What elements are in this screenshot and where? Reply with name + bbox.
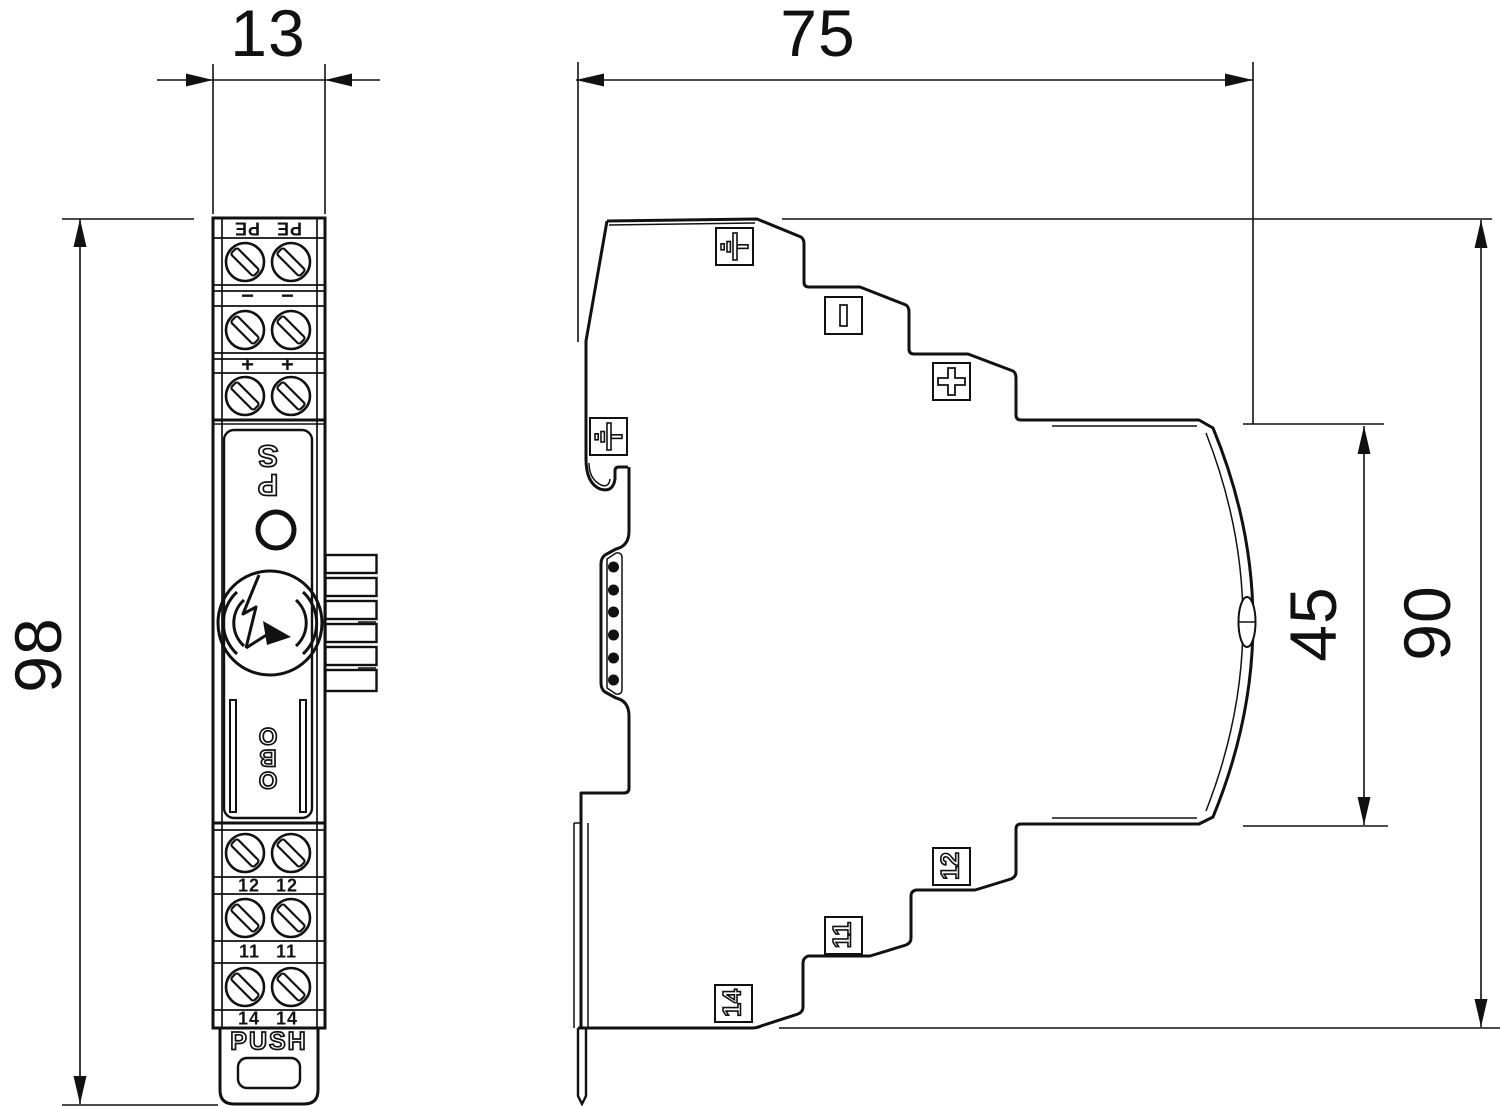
- edge-latch-lens: [1239, 597, 1257, 647]
- brand-ps: P S: [258, 441, 279, 498]
- dim-side-width: [576, 62, 1253, 424]
- dim-label-front-height: 98: [0, 617, 76, 692]
- drawing-linework: [0, 0, 1500, 1106]
- bus-comb-connector: [326, 555, 377, 691]
- front-view: [213, 218, 377, 1104]
- side-view: [574, 219, 1256, 1104]
- t12-left: 12: [238, 876, 260, 897]
- side-release-tab: [578, 1028, 586, 1104]
- dim-label-side-height: 90: [1389, 585, 1465, 660]
- dim-front-height: [62, 219, 218, 1105]
- dim-front-width: [157, 64, 380, 214]
- dim-label-front-width: 13: [230, 0, 305, 71]
- side-markers: [590, 228, 970, 1022]
- terminal-label-pe: PEPE: [234, 218, 302, 239]
- ps-letter-p: P: [258, 470, 279, 499]
- side-label-11: 11: [829, 922, 858, 948]
- current-bar-icon: [840, 305, 847, 326]
- bus-connector-side: [607, 553, 622, 694]
- ps-letter-s: S: [258, 441, 279, 470]
- inspection-window: [258, 512, 294, 548]
- obo-letter-1: O: [259, 768, 278, 790]
- terminal-label-minus: −−: [241, 283, 295, 309]
- terminal-label-plus: ++: [241, 352, 295, 378]
- plus-right: +: [281, 352, 295, 378]
- lightning-emblem-icon: [218, 571, 322, 675]
- terminal-label-11: 1111: [239, 942, 297, 963]
- terminal-label-14: 1414: [238, 1009, 298, 1030]
- pe-left: PE: [276, 218, 302, 239]
- dim-label-side-width: 75: [780, 0, 855, 71]
- obo-letter-3: O: [259, 724, 278, 746]
- dim-label-side-inner-height: 45: [1275, 586, 1351, 661]
- plus-icon: [938, 368, 965, 395]
- minus-right: −: [281, 283, 295, 309]
- plus-left: +: [241, 352, 255, 378]
- pe-right: PE: [234, 218, 260, 239]
- technical-drawing: 13 75 98 45 90 PEPE −− ++ 1212 1111 1414…: [0, 0, 1500, 1106]
- side-label-12: 12: [937, 852, 966, 880]
- t11-right: 11: [276, 942, 297, 963]
- push-label: PUSH: [230, 1028, 307, 1057]
- t12-right: 12: [276, 876, 298, 897]
- t14-left: 14: [238, 1009, 260, 1030]
- t14-right: 14: [276, 1009, 298, 1030]
- release-slot: [238, 1058, 300, 1088]
- bus-connector-pins: [608, 562, 619, 686]
- t11-left: 11: [239, 942, 260, 963]
- minus-left: −: [241, 283, 255, 309]
- terminal-label-12: 1212: [238, 876, 298, 897]
- obo-letter-2: B: [259, 746, 276, 768]
- side-label-14: 14: [719, 989, 748, 1017]
- brand-obo: O B O: [259, 724, 278, 790]
